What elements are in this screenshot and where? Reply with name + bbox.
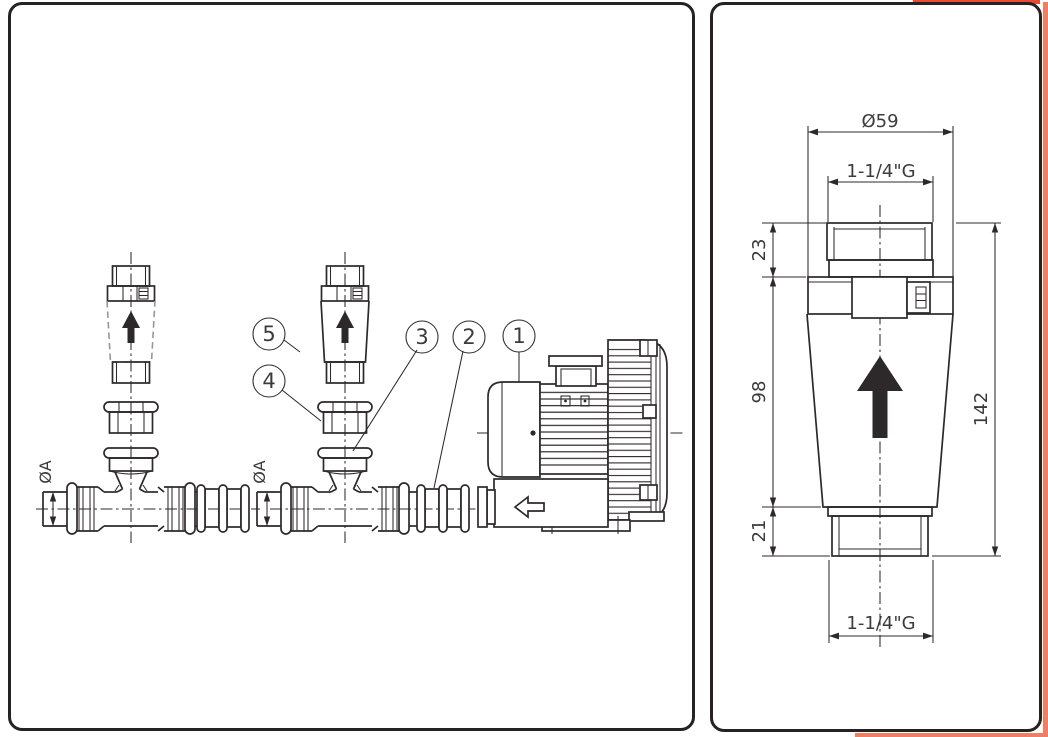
page-accent-strip-right	[1043, 2, 1048, 735]
installation-diagram-panel	[8, 2, 695, 731]
valve-dimension-panel	[710, 2, 1042, 732]
page-accent-strip-bottom	[855, 733, 1048, 737]
